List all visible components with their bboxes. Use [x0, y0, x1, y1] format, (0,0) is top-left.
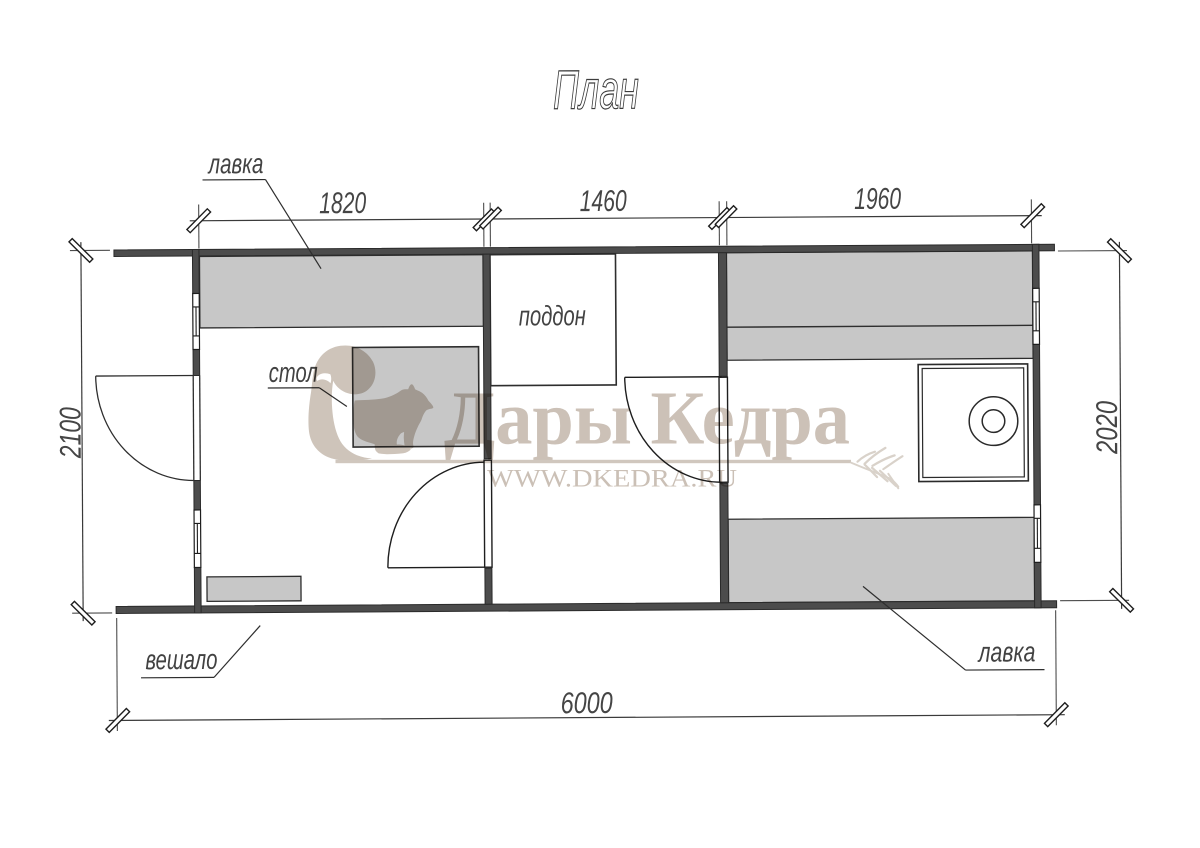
svg-text:1960: 1960 [854, 183, 901, 216]
svg-text:1460: 1460 [580, 185, 627, 218]
svg-text:2020: 2020 [1091, 401, 1124, 455]
svg-text:лавка: лавка [977, 636, 1036, 667]
svg-text:WWW.DKEDRA.RU: WWW.DKEDRA.RU [487, 466, 737, 493]
svg-text:поддон: поддон [519, 300, 586, 331]
svg-text:лавка: лавка [207, 148, 264, 179]
svg-text:вешало: вешало [145, 644, 217, 675]
svg-text:2100: 2100 [54, 407, 87, 459]
svg-text:1820: 1820 [319, 187, 366, 220]
svg-text:6000: 6000 [561, 687, 613, 720]
svg-text:План: План [553, 58, 639, 121]
svg-text:Дары Кедра: Дары Кедра [444, 377, 850, 461]
svg-text:стол: стол [269, 357, 318, 388]
